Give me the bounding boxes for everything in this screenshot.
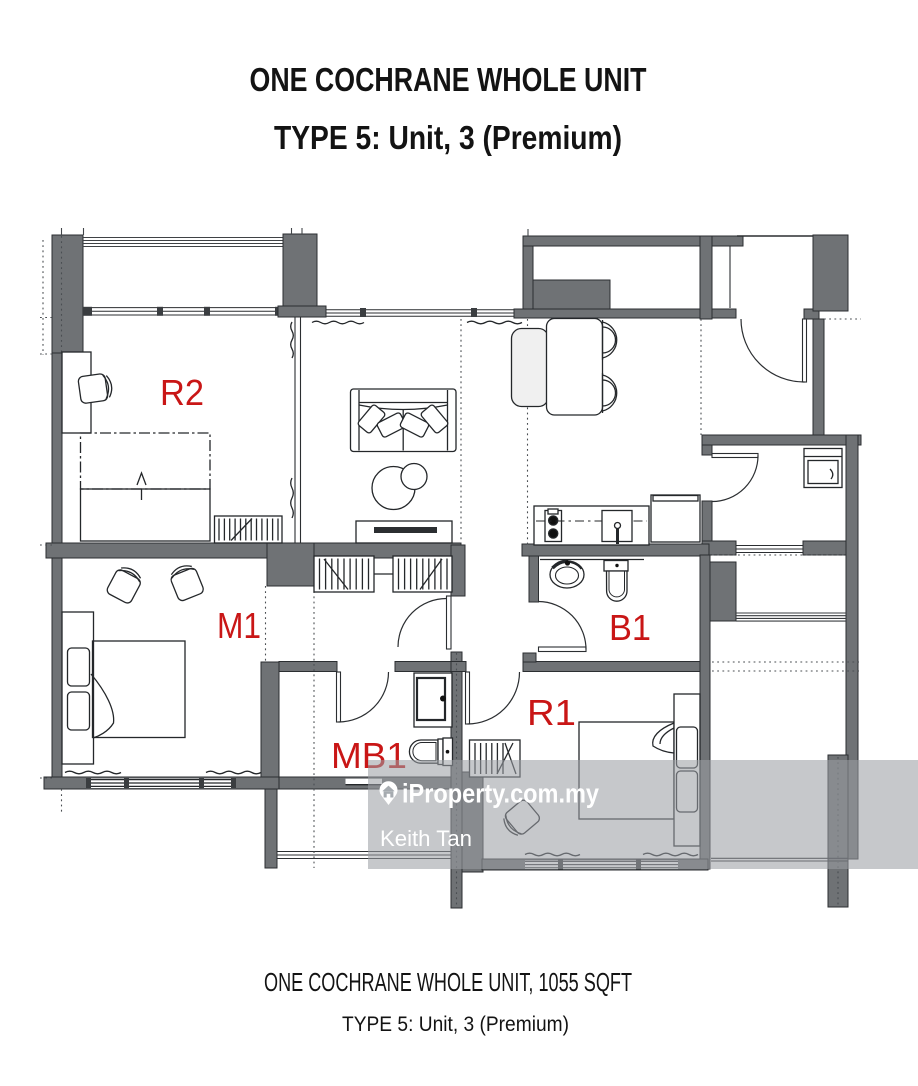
svg-text:TYPE 5: Unit, 3 (Premium): TYPE 5: Unit, 3 (Premium) xyxy=(274,119,622,156)
svg-text:iProperty.com.my: iProperty.com.my xyxy=(402,779,599,809)
svg-text:TYPE 5: Unit, 3 (Premium): TYPE 5: Unit, 3 (Premium) xyxy=(342,1013,569,1036)
svg-text:R2: R2 xyxy=(160,372,204,413)
svg-text:B1: B1 xyxy=(609,607,651,648)
svg-text:Keith Tan: Keith Tan xyxy=(380,826,472,851)
svg-text:M1: M1 xyxy=(217,605,261,646)
svg-text:ONE COCHRANE WHOLE UNIT, 1055: ONE COCHRANE WHOLE UNIT, 1055 SQFT xyxy=(264,967,632,997)
svg-text:R1: R1 xyxy=(527,692,576,733)
svg-text:ONE COCHRANE WHOLE UNIT: ONE COCHRANE WHOLE UNIT xyxy=(250,61,647,98)
